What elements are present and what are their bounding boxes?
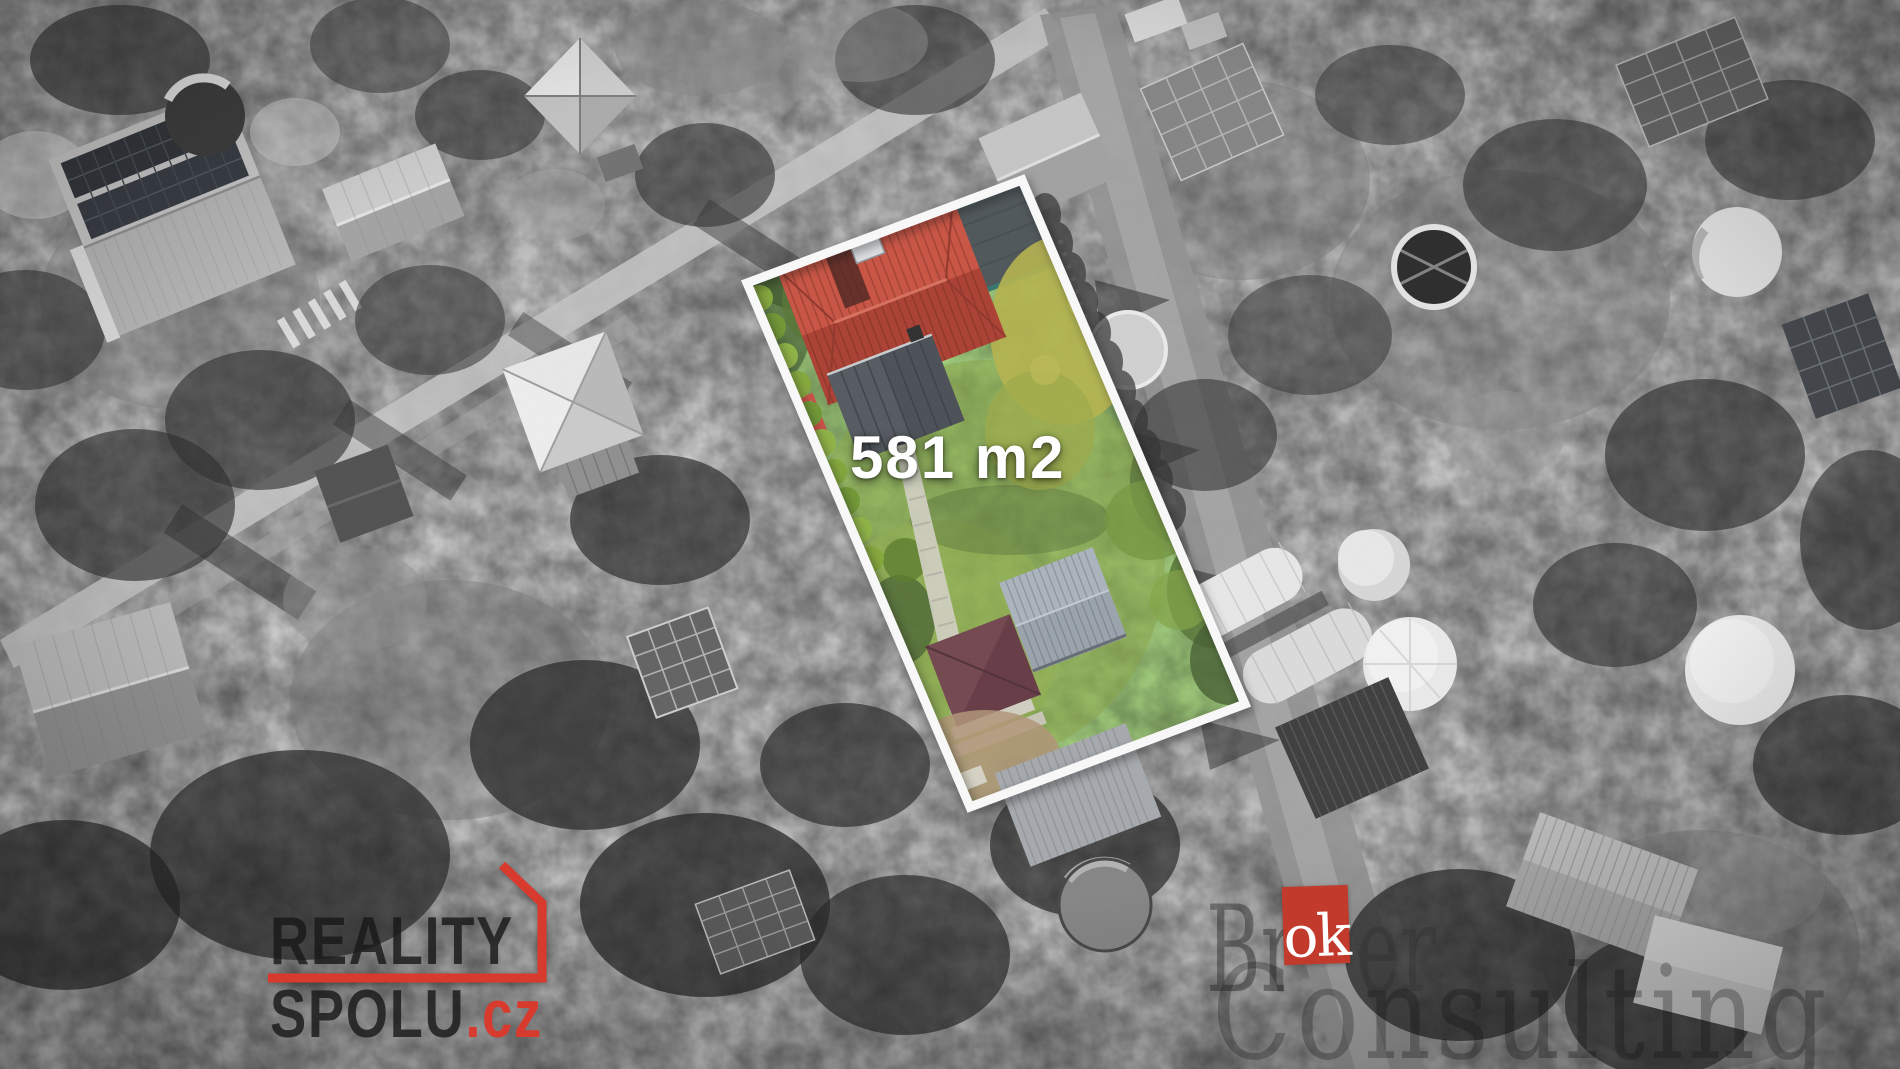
- agency-logo-text-spolu: SPOLU: [270, 976, 465, 1052]
- agency-logo-text-reality: REALITY: [270, 907, 514, 975]
- agency-logo-text-spolu-cz: SPOLU.cz: [270, 980, 543, 1048]
- agency-logo-tld: .cz: [465, 976, 542, 1052]
- parcel-area-label: 581 m2: [850, 428, 1066, 488]
- aerial-photo: 581 m2 REALITY SPOLU.cz Br ok er Consult…: [0, 0, 1900, 1069]
- agency-logo: REALITY SPOLU.cz: [230, 855, 570, 1069]
- watermark-text-consulting: Consulting: [1212, 948, 1831, 1069]
- broker-watermark: Br ok er Consulting: [1140, 848, 1900, 1069]
